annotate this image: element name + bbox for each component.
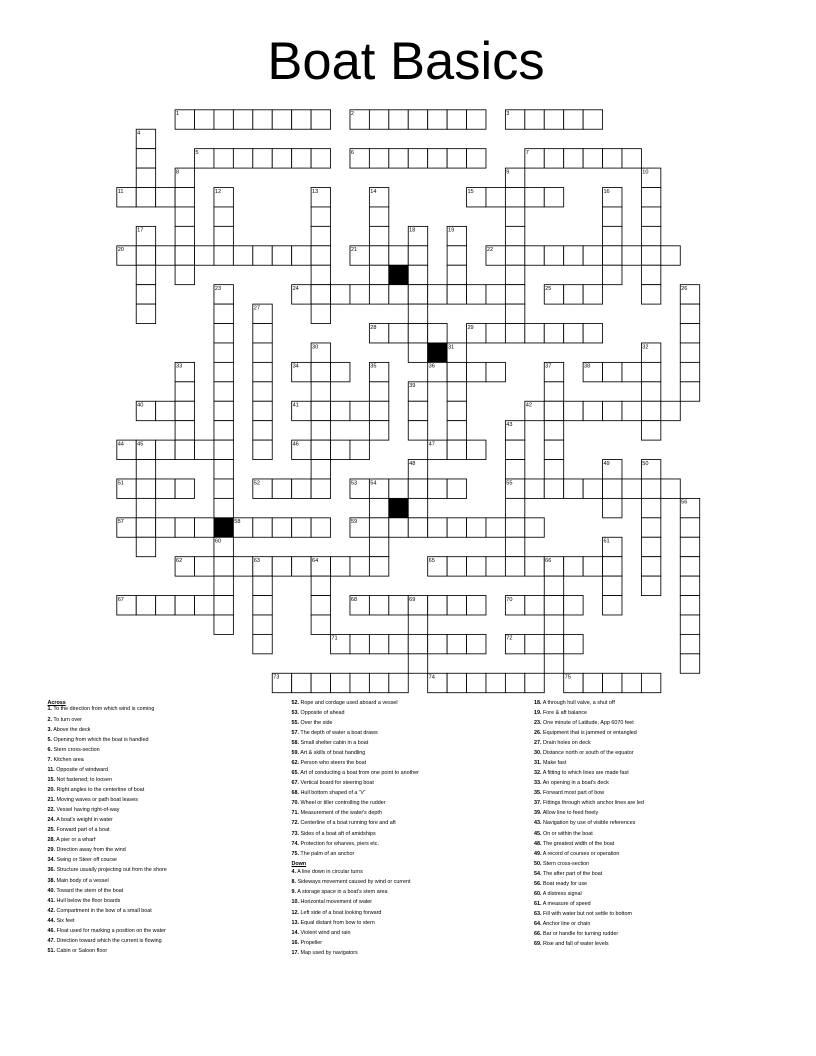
svg-text:9: 9 xyxy=(506,169,509,175)
svg-text:25: 25 xyxy=(545,286,551,292)
svg-text:57: 57 xyxy=(118,519,124,525)
svg-text:74: 74 xyxy=(429,675,435,681)
svg-text:14: 14 xyxy=(370,189,376,195)
svg-text:52: 52 xyxy=(254,480,260,486)
svg-text:13: 13 xyxy=(312,189,318,195)
svg-text:71: 71 xyxy=(331,636,337,642)
svg-text:48: 48 xyxy=(409,461,415,467)
svg-text:16: 16 xyxy=(603,189,609,195)
svg-text:66: 66 xyxy=(545,558,551,564)
svg-text:12: 12 xyxy=(215,189,221,195)
svg-text:64: 64 xyxy=(312,558,318,564)
svg-text:41: 41 xyxy=(293,403,299,409)
svg-text:50: 50 xyxy=(642,461,648,467)
svg-text:44: 44 xyxy=(118,441,124,447)
svg-text:4: 4 xyxy=(137,131,140,137)
svg-text:34: 34 xyxy=(293,364,299,370)
svg-text:61: 61 xyxy=(603,539,609,545)
svg-text:59: 59 xyxy=(351,519,357,525)
svg-text:43: 43 xyxy=(506,422,512,428)
svg-text:18: 18 xyxy=(409,228,415,234)
svg-text:46: 46 xyxy=(293,441,299,447)
svg-text:24: 24 xyxy=(293,286,299,292)
svg-text:3: 3 xyxy=(506,111,509,117)
svg-text:36: 36 xyxy=(429,364,435,370)
svg-text:32: 32 xyxy=(642,344,648,350)
svg-text:45: 45 xyxy=(137,441,143,447)
svg-text:19: 19 xyxy=(448,228,454,234)
svg-text:30: 30 xyxy=(312,344,318,350)
svg-text:22: 22 xyxy=(487,247,493,253)
svg-text:75: 75 xyxy=(565,675,571,681)
svg-text:68: 68 xyxy=(351,597,357,603)
svg-text:49: 49 xyxy=(603,461,609,467)
svg-text:1: 1 xyxy=(176,111,179,117)
svg-text:37: 37 xyxy=(545,364,551,370)
svg-text:55: 55 xyxy=(506,480,512,486)
svg-text:5: 5 xyxy=(195,150,198,156)
svg-text:35: 35 xyxy=(370,364,376,370)
svg-text:62: 62 xyxy=(176,558,182,564)
svg-text:8: 8 xyxy=(176,169,179,175)
svg-text:58: 58 xyxy=(234,519,240,525)
svg-text:10: 10 xyxy=(642,169,648,175)
svg-text:38: 38 xyxy=(584,364,590,370)
svg-text:56: 56 xyxy=(681,500,687,506)
svg-text:60: 60 xyxy=(215,539,221,545)
svg-text:39: 39 xyxy=(409,383,415,389)
svg-text:21: 21 xyxy=(351,247,357,253)
svg-text:28: 28 xyxy=(370,325,376,331)
svg-text:40: 40 xyxy=(137,403,143,409)
svg-text:70: 70 xyxy=(506,597,512,603)
svg-text:51: 51 xyxy=(118,480,124,486)
svg-text:23: 23 xyxy=(215,286,221,292)
svg-text:31: 31 xyxy=(448,344,454,350)
svg-text:27: 27 xyxy=(254,305,260,311)
svg-text:20: 20 xyxy=(118,247,124,253)
svg-text:26: 26 xyxy=(681,286,687,292)
svg-text:2: 2 xyxy=(351,111,354,117)
svg-text:6: 6 xyxy=(351,150,354,156)
svg-text:47: 47 xyxy=(429,441,435,447)
svg-text:33: 33 xyxy=(176,364,182,370)
svg-text:42: 42 xyxy=(526,403,532,409)
svg-text:67: 67 xyxy=(118,597,124,603)
svg-text:72: 72 xyxy=(506,636,512,642)
svg-text:15: 15 xyxy=(467,189,473,195)
svg-text:54: 54 xyxy=(370,480,376,486)
svg-text:63: 63 xyxy=(254,558,260,564)
svg-text:7: 7 xyxy=(526,150,529,156)
svg-text:53: 53 xyxy=(351,480,357,486)
svg-text:73: 73 xyxy=(273,675,279,681)
svg-text:65: 65 xyxy=(429,558,435,564)
svg-text:11: 11 xyxy=(118,189,124,195)
svg-text:17: 17 xyxy=(137,228,143,234)
svg-text:29: 29 xyxy=(467,325,473,331)
svg-text:69: 69 xyxy=(409,597,415,603)
